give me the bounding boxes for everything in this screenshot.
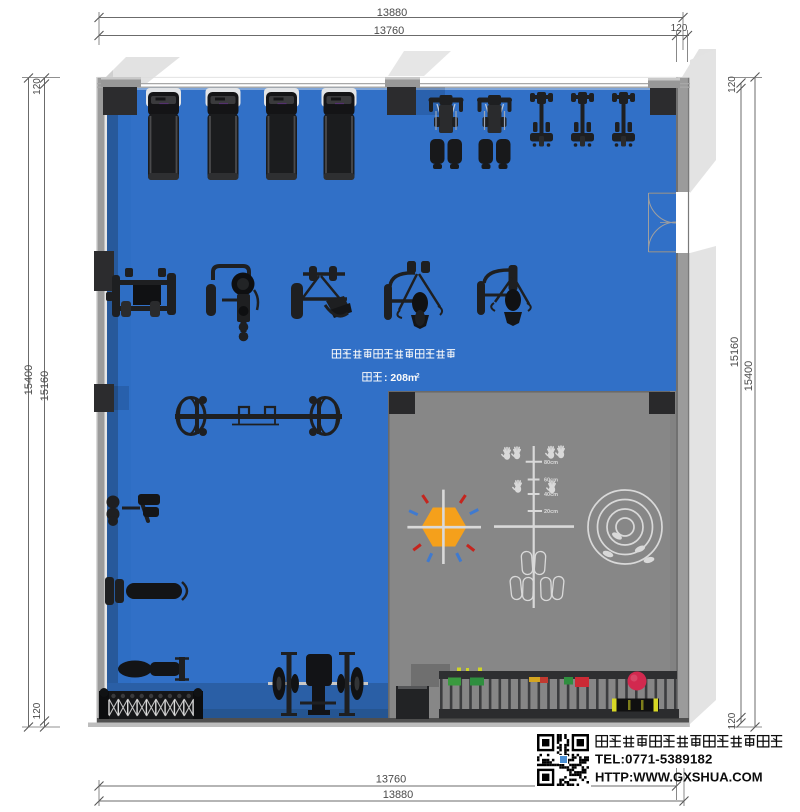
svg-text:15160: 15160	[729, 337, 741, 368]
svg-text:13760: 13760	[374, 25, 405, 37]
svg-text:13760: 13760	[376, 774, 407, 786]
svg-text:15160: 15160	[39, 371, 51, 402]
svg-text:TEL:0771-5389182: TEL:0771-5389182	[595, 752, 713, 767]
svg-text:13880: 13880	[383, 789, 414, 801]
svg-text:13880: 13880	[377, 7, 408, 19]
svg-text:120: 120	[32, 702, 43, 719]
svg-text:: 208m: : 208m	[384, 372, 417, 384]
svg-text:60cm: 60cm	[544, 478, 558, 484]
svg-text:20cm: 20cm	[544, 509, 558, 515]
svg-text:15400: 15400	[23, 365, 35, 396]
svg-text:120: 120	[32, 78, 43, 95]
svg-text:2: 2	[416, 373, 420, 380]
svg-text:80cm: 80cm	[544, 460, 558, 466]
svg-text:HTTP:WWW.GXSHUA.COM: HTTP:WWW.GXSHUA.COM	[595, 770, 763, 785]
svg-text:15400: 15400	[743, 361, 755, 392]
svg-text:120: 120	[727, 76, 738, 93]
svg-text:120: 120	[671, 23, 688, 34]
